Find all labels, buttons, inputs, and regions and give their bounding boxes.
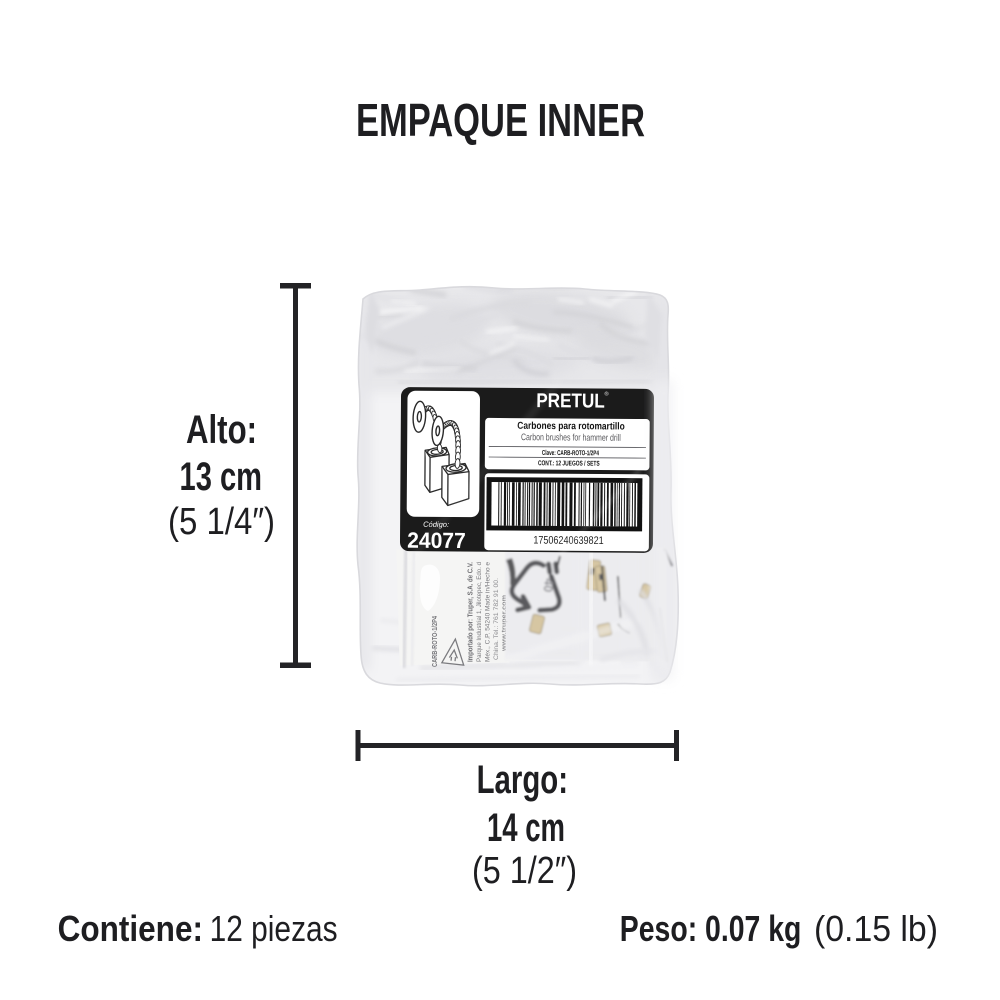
- svg-text:Peso: 0.07 kg: Peso: 0.07 kg: [620, 908, 802, 949]
- svg-text:13 cm: 13 cm: [180, 455, 263, 499]
- svg-text:Largo:: Largo:: [477, 758, 568, 802]
- svg-text:Contiene:: Contiene:: [58, 908, 203, 949]
- svg-text:14 cm: 14 cm: [487, 806, 565, 850]
- svg-text:(0.15 lb): (0.15 lb): [814, 908, 938, 949]
- svg-text:Carbones para rotomartillo: Carbones para rotomartillo: [517, 421, 624, 433]
- svg-text:(5 1/2″): (5 1/2″): [472, 850, 577, 892]
- svg-text:EMPAQUE INNER: EMPAQUE INNER: [356, 94, 645, 146]
- svg-text:(5 1/4″): (5 1/4″): [168, 501, 275, 543]
- svg-text:CARB-ROTO-1/2P4: CARB-ROTO-1/2P4: [432, 616, 439, 667]
- svg-text:Clave: CARB-ROTO-1/2P4: Clave: CARB-ROTO-1/2P4: [542, 450, 599, 457]
- svg-text:®: ®: [604, 391, 608, 398]
- svg-text:12 piezas: 12 piezas: [210, 908, 338, 949]
- svg-text:CONT.: 12 JUEGOS / SETS: CONT.: 12 JUEGOS / SETS: [538, 460, 600, 467]
- svg-text:Carbon brushes for hammer dril: Carbon brushes for hammer drill: [521, 432, 621, 444]
- svg-text:Parque Industrial 1, Jilotepec: Parque Industrial 1, Jilotepec, Edo. d: [476, 562, 483, 662]
- svg-text:Alto:: Alto:: [186, 408, 257, 452]
- svg-text:Importado por: Truper, S.A. de: Importado por: Truper, S.A. de C.V.: [468, 562, 475, 662]
